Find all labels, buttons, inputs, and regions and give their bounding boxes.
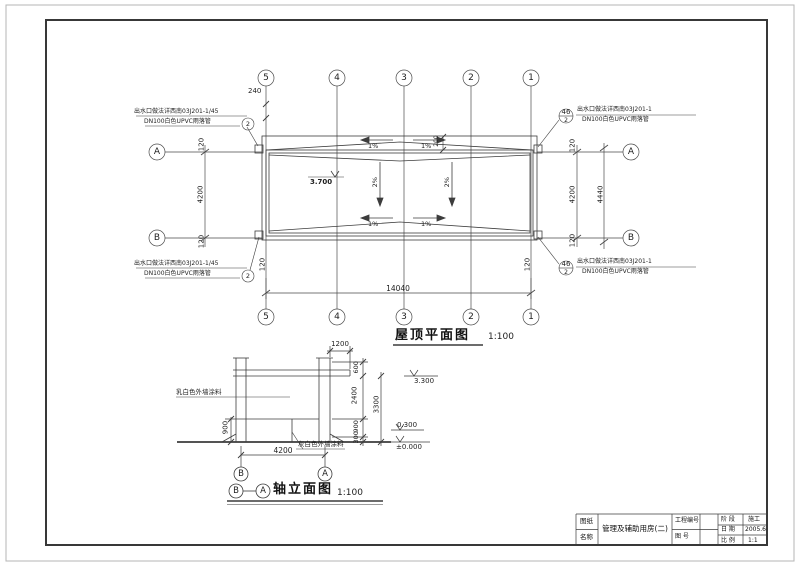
elevation-title: 轴立面图 (273, 483, 333, 496)
drawing-sheet: 5 4 3 2 1 5 4 3 2 1 A A B B 240 200 120 … (0, 0, 800, 567)
drain-note-top-right-line2: DN100白色UPVC雨落管 (582, 117, 649, 123)
dim-gutter-200: 200 (434, 124, 440, 158)
grid-bubble-4-bottom: 4 (329, 313, 345, 322)
titleblock-scale-value: 1:1 (748, 538, 758, 544)
slope-label-1pct-top-right: 1% (421, 143, 431, 150)
plan-title: 屋顶平面图 (395, 329, 470, 342)
elev-grid-bubble-A: A (317, 470, 333, 479)
dim-overall-14040: 14040 (368, 285, 428, 293)
grid-bubble-2-top: 2 (463, 74, 479, 83)
grid-bubble-3-top: 3 (396, 74, 412, 83)
grid-bubble-B-right: B (623, 234, 639, 243)
sheet-frame (6, 5, 794, 561)
drain-note-bottom-left-line2: DN100白色UPVC雨落管 (144, 271, 211, 277)
titleblock-stage-label: 阶 段 (721, 517, 735, 523)
grid-bubble-A-left: A (149, 148, 165, 157)
titleblock-label-sheet: 图纸 (580, 518, 593, 525)
level-0000: ±0.000 (396, 444, 422, 451)
titleblock-date-value: 2005.6 (745, 527, 766, 533)
detail-bubble-bottom-left: 2 (244, 273, 252, 280)
detail-bubble-top-left: 2 (244, 121, 252, 128)
grid-bubble-5-top: 5 (258, 74, 274, 83)
base-finish-note: 灰白色外墙涂料 (298, 441, 344, 448)
slope-label-1pct-bottom-right: 1% (421, 221, 431, 228)
dim-overall-4440: 4440 (598, 178, 605, 212)
grid-bubble-1-top: 1 (523, 74, 539, 83)
titleblock-scale-label: 比 例 (721, 538, 735, 544)
dim-bottom-4200: 4200 (263, 447, 303, 455)
detail-bubble-bottom-right-no: 46 (560, 261, 572, 268)
titleblock-project-name: 管理及辅助用房(二) (598, 525, 672, 533)
grid-bubble-1-bottom: 1 (523, 313, 539, 322)
grid-bubble-5-bottom: 5 (258, 313, 274, 322)
slope-label-2pct-left: 2% (372, 165, 379, 199)
slope-label-1pct-bottom-left: 1% (368, 221, 378, 228)
grid-bubble-B-left: B (149, 234, 165, 243)
drain-note-bottom-right-line2: DN100白色UPVC雨落管 (582, 269, 649, 275)
dim-edge-120-left-top: 120 (199, 128, 206, 162)
level-3300: 3.300 (414, 378, 434, 385)
dim-edge-120-bottom-right: 120 (525, 248, 532, 282)
plan-scale: 1:100 (488, 333, 514, 342)
drain-note-top-right-line1: 出水口做法详西南03J201-1 (577, 107, 652, 113)
grid-bubble-3-bottom: 3 (396, 313, 412, 322)
slope-label-2pct-right: 2% (444, 165, 451, 199)
titleblock-label-drawing-no: 图 号 (675, 534, 689, 540)
dim-chain-2400: 2400 (352, 379, 359, 413)
elevation-scale: 1:100 (337, 489, 363, 498)
drain-note-top-left-line1: 出水口做法详西南03J201-1/45 (134, 109, 219, 115)
drain-note-bottom-left-line1: 出水口做法详西南03J201-1/45 (134, 261, 219, 267)
drain-note-bottom-right-line1: 出水口做法详西南03J201-1 (577, 259, 652, 265)
titleblock-label-name: 名称 (580, 534, 593, 541)
dim-edge-120-right-top: 120 (570, 129, 577, 163)
dim-chain-300: 300 (353, 420, 360, 454)
dim-overall-3300: 3300 (374, 388, 381, 422)
plan-note-leaders (136, 109, 696, 282)
dim-bay-4200-right: 4200 (570, 178, 577, 212)
dim-left-900: 900 (223, 411, 230, 445)
dim-canopy-1200: 1200 (325, 341, 355, 348)
titleblock-stage-value: 施工 (748, 517, 760, 523)
level-0300: 0.300 (397, 422, 417, 429)
dim-edge-120-right-bottom: 120 (570, 224, 577, 258)
dim-edge-120-left-bottom: 120 (199, 225, 206, 259)
elev-grid-bubble-B: B (233, 470, 249, 479)
wall-finish-note: 乳白色外墙涂料 (176, 389, 222, 396)
dim-edge-120-bottom-left: 120 (260, 248, 267, 282)
grid-bubble-A-right: A (623, 148, 639, 157)
elev-title-bubble-A: A (255, 487, 271, 496)
dim-bay-4200-left: 4200 (198, 178, 205, 212)
elev-title-bubble-B: B (228, 487, 244, 496)
roof-level-marker-text: 3.700 (310, 179, 332, 186)
titleblock-label-project-no: 工程编号 (675, 518, 699, 524)
detail-bubble-bottom-right-sheet: 2 (560, 270, 572, 276)
detail-bubble-top-right-sheet: 2 (560, 118, 572, 124)
dim-parapet-240: 240 (248, 88, 261, 95)
titleblock-date-label: 日 期 (721, 527, 735, 533)
slope-label-1pct-top-left: 1% (368, 143, 378, 150)
grid-bubble-2-bottom: 2 (463, 313, 479, 322)
roof-plan-lines (255, 101, 542, 240)
detail-bubble-top-right-no: 46 (560, 109, 572, 116)
grid-bubble-4-top: 4 (329, 74, 345, 83)
drain-note-top-left-line2: DN100白色UPVC雨落管 (144, 119, 211, 125)
